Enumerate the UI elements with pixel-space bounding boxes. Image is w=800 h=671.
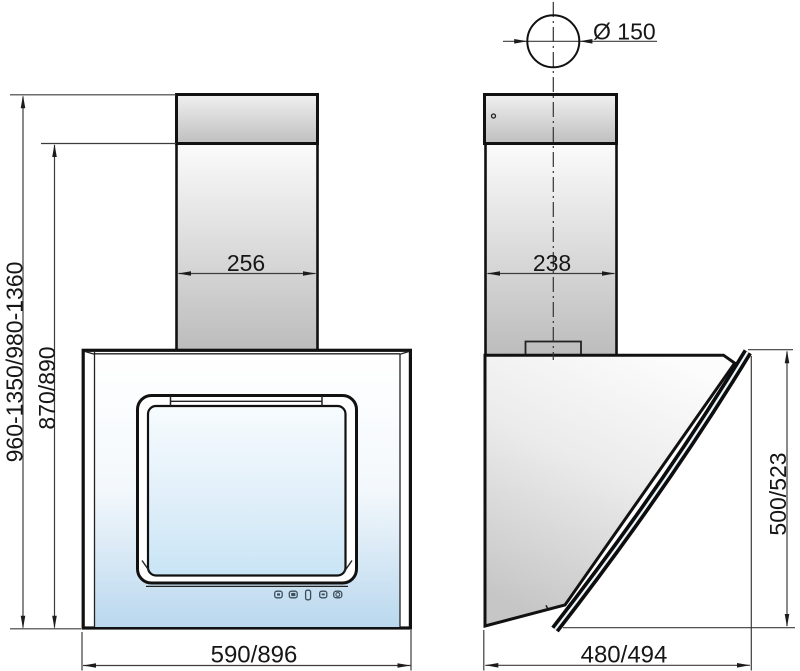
svg-text:Ø 150: Ø 150 bbox=[593, 19, 656, 45]
svg-text:500/523: 500/523 bbox=[765, 452, 791, 535]
svg-text:870/890: 870/890 bbox=[34, 346, 60, 429]
svg-text:480/494: 480/494 bbox=[581, 642, 668, 669]
svg-text:256: 256 bbox=[227, 250, 265, 276]
svg-text:960-1350/980-1360: 960-1350/980-1360 bbox=[2, 262, 28, 463]
svg-text:590/896: 590/896 bbox=[211, 642, 298, 669]
svg-text:238: 238 bbox=[533, 250, 571, 276]
